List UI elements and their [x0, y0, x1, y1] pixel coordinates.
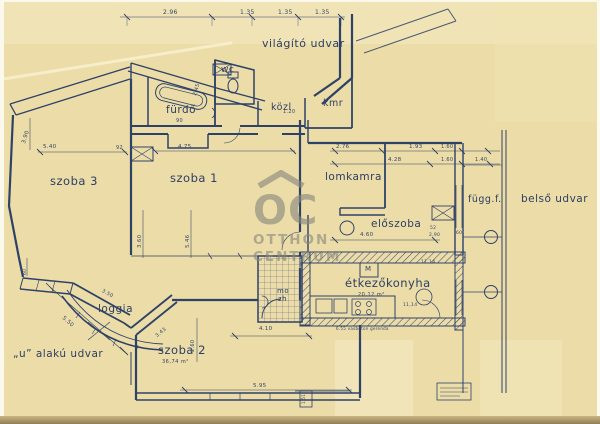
dim-szoba3-width: 5.40	[43, 145, 56, 151]
dim-east-3: 1.40	[475, 158, 487, 163]
label-zh: zh	[278, 296, 287, 303]
dim-top-1: 2.96	[163, 10, 178, 16]
dim-appliance-m: M	[365, 266, 371, 273]
dim-szoba1-width: 4.75	[178, 145, 191, 151]
dim-eloszoba-width: 4.60	[360, 233, 373, 239]
watermark-otthon-centrum: OC OTTHON CENTRUM	[253, 170, 363, 264]
watermark-roof-icon	[253, 170, 323, 188]
dim-top-2: 1.35	[240, 10, 255, 16]
label-kmr: kmr	[323, 99, 343, 109]
dim-lomkamra-2: 1.93	[409, 145, 422, 151]
label-belso-udvar: belső udvar	[521, 194, 588, 205]
scan-edge-top	[0, 0, 600, 2]
label-szoba3: szoba 3	[50, 176, 98, 188]
dim-furdo-width: 90	[176, 119, 183, 124]
dim-lomkamra-3: 1.60	[441, 145, 453, 150]
label-szoba2-area: 36,74 m²	[162, 360, 189, 365]
dim-kozl: 1.20	[283, 110, 295, 115]
scan-edge-bottom	[0, 416, 600, 424]
dim-beam-note: 6.55 vasbeton gerenda	[336, 327, 389, 331]
dim-level-1: 11,14	[421, 261, 435, 266]
watermark-line1: OTTHON	[253, 234, 363, 248]
dim-lomkamra-1: 2.76	[336, 145, 349, 151]
label-eloszoba: előszoba	[371, 219, 421, 230]
scan-edge-left	[0, 0, 4, 424]
dim-east-1: 4.28	[388, 158, 401, 164]
table-icon	[416, 289, 432, 305]
label-wc: wc	[221, 66, 234, 75]
dim-szoba2-top: 4.10	[259, 327, 272, 333]
dim-szoba1-depth: 5.46	[186, 235, 192, 248]
east-wall	[455, 143, 463, 393]
dim-eloszoba-4: 60	[456, 232, 462, 237]
dim-east-2: 1.60	[441, 158, 453, 163]
toilet-icon	[228, 79, 238, 93]
label-furdo: fürdő	[166, 105, 196, 116]
note-box	[300, 383, 471, 407]
label-szoba1: szoba 1	[170, 173, 218, 185]
room-szoba3-walls	[9, 79, 153, 323]
light-court-shaft	[213, 14, 352, 104]
loggia-walls	[62, 290, 163, 352]
dim-eloszoba-3: 2.90	[429, 234, 440, 239]
neighbour-walls	[10, 67, 130, 115]
dim-bottom-box: 1.51	[302, 394, 306, 404]
dim-top-4: 1.35	[315, 10, 330, 16]
label-etkezokonyha-area: 20,12 m²	[358, 293, 385, 298]
label-loggia: loggia	[98, 304, 133, 315]
label-mo: mo	[277, 288, 289, 295]
kitchen-fixtures	[310, 263, 440, 318]
label-fuggf: függ.f.	[468, 195, 502, 205]
label-lomkamra: lomkamra	[325, 172, 382, 183]
label-vilagito-udvar: világító udvar	[262, 38, 345, 49]
dim-window: 60	[24, 269, 29, 275]
sink-icon	[316, 299, 332, 313]
dim-eloszoba-2: 52	[430, 227, 436, 232]
scanned-floorplan-page: { "watermark": { "logo": "OC", "line1": …	[0, 0, 600, 424]
label-etkezokonyha: étkezőkonyha	[345, 278, 431, 290]
dim-szoba2-depth: 2.60	[191, 340, 196, 352]
dim-level-2: 11,14	[403, 304, 417, 309]
dim-szoba3-depth: 3.60	[138, 235, 144, 248]
hanging-corridor	[463, 130, 506, 393]
dim-top-3: 1.35	[278, 10, 293, 16]
dim-szoba2-width: 5.95	[253, 384, 266, 390]
roof-lines-topright	[356, 9, 456, 53]
watermark-logo: OC	[253, 191, 363, 231]
label-u-alaku-udvar: „u” alakú udvar	[13, 349, 103, 360]
dim-szoba3-right: 92	[116, 146, 123, 151]
watermark-line2: CENTRUM	[253, 251, 363, 265]
label-szoba2: szoba 2	[158, 345, 206, 357]
